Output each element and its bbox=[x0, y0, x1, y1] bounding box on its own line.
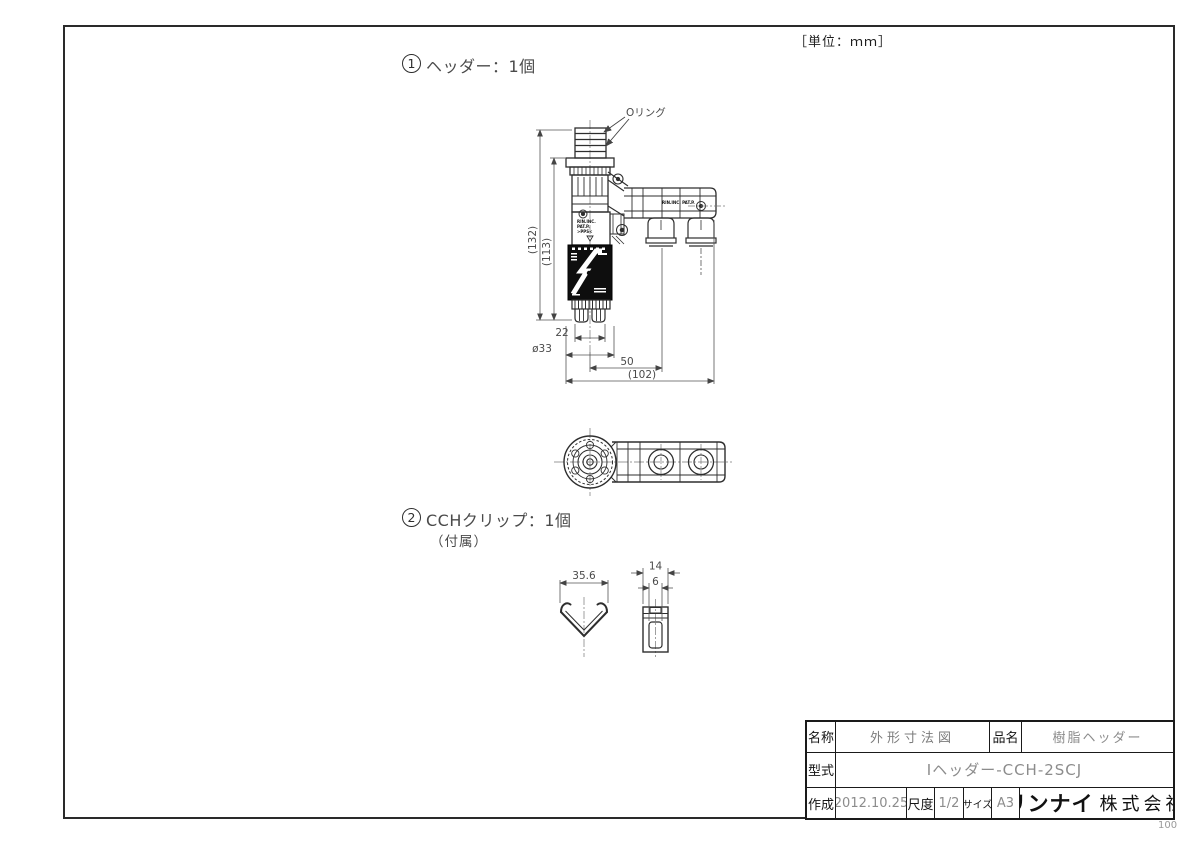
header-front-view: Oリング bbox=[520, 100, 740, 400]
size-value-cell: A3 bbox=[992, 788, 1020, 818]
scale-label-cell: 尺度 bbox=[907, 788, 935, 818]
arm-brace bbox=[608, 172, 628, 216]
dim-prong-width: 22 bbox=[555, 327, 568, 339]
down-port-right bbox=[686, 218, 716, 246]
item1-header: 1 ヘッダー：1個 bbox=[402, 54, 536, 77]
product-label-sticker bbox=[568, 245, 612, 300]
clip-dim-depth: 14 bbox=[649, 561, 663, 573]
top-view-body bbox=[611, 442, 725, 482]
company-suffix: 株式会社 bbox=[1100, 790, 1174, 816]
item1-number-balloon: 1 bbox=[402, 54, 421, 73]
item1-label: ヘッダー：1個 bbox=[426, 53, 536, 77]
item2-header: 2 CCHクリップ：1個 bbox=[402, 508, 572, 531]
name-value-cell: 外形寸法図 bbox=[836, 722, 990, 752]
model-value-cell: Iヘッダー-CCH-2SCJ bbox=[836, 753, 1173, 787]
clip-front-view bbox=[561, 597, 607, 657]
flange bbox=[566, 158, 614, 175]
clip-dim-slot: 6 bbox=[652, 576, 659, 588]
item2-number-balloon: 2 bbox=[402, 508, 421, 527]
oring-pipe bbox=[575, 128, 606, 158]
clip-side-view bbox=[643, 599, 668, 657]
header-top-view bbox=[520, 425, 740, 505]
size-label-cell: サイズ bbox=[964, 788, 992, 818]
oring-callout: Oリング bbox=[604, 106, 666, 146]
scale-value-cell: 1/2 bbox=[935, 788, 964, 818]
item-label-cell: 品名 bbox=[990, 722, 1022, 752]
title-block-row-1: 名称 外形寸法図 品名 樹脂ヘッダー bbox=[807, 722, 1173, 753]
dim-flange-dia: ø33 bbox=[532, 343, 552, 355]
dim-total-width: (102) bbox=[628, 369, 656, 381]
clip-views: 35.6 14 6 bbox=[530, 555, 690, 670]
svg-text:>PPS<: >PPS< bbox=[577, 229, 592, 234]
lower-body bbox=[572, 300, 610, 322]
item2-label: CCHクリップ：1個 bbox=[426, 507, 572, 531]
title-block-row-2: 型式 Iヘッダー-CCH-2SCJ bbox=[807, 753, 1173, 788]
model-label-cell: 型式 bbox=[807, 753, 836, 787]
oring-leader-1 bbox=[604, 117, 625, 132]
unit-label: ［単位：ｍｍ］ bbox=[794, 31, 892, 50]
title-block: 名称 外形寸法図 品名 樹脂ヘッダー 型式 Iヘッダー-CCH-2SCJ 作成 … bbox=[805, 720, 1175, 820]
body-molded-text: RIN.INC. PAT.P. >PPS< bbox=[577, 219, 596, 234]
item2-note: （付属） bbox=[430, 530, 488, 550]
dim-port-offset: 50 bbox=[620, 356, 633, 368]
down-port-left bbox=[646, 218, 676, 246]
corner-note: 100 bbox=[1158, 820, 1177, 831]
clip-dim-width: 35.6 bbox=[572, 570, 596, 582]
oring-leader-2 bbox=[606, 119, 629, 146]
arm-molded-text: RIN.INC. PAT.P. bbox=[662, 200, 695, 205]
name-label-cell: 名称 bbox=[807, 722, 836, 752]
company-cell: リンナイ株式会社 bbox=[1020, 788, 1173, 818]
date-value-cell: 2012.10.25 bbox=[836, 788, 907, 818]
dim-total-height: (132) bbox=[527, 226, 539, 254]
company-logo-text: リンナイ bbox=[1020, 788, 1094, 818]
item-value-cell: 樹脂ヘッダー bbox=[1022, 722, 1173, 752]
date-label-cell: 作成 bbox=[807, 788, 836, 818]
dim-lines bbox=[536, 130, 714, 384]
dim-body-height: (113) bbox=[541, 238, 553, 266]
oring-label: Oリング bbox=[626, 106, 666, 119]
title-block-row-3: 作成 2012.10.25 尺度 1/2 サイズ A3 リンナイ株式会社 bbox=[807, 788, 1173, 818]
